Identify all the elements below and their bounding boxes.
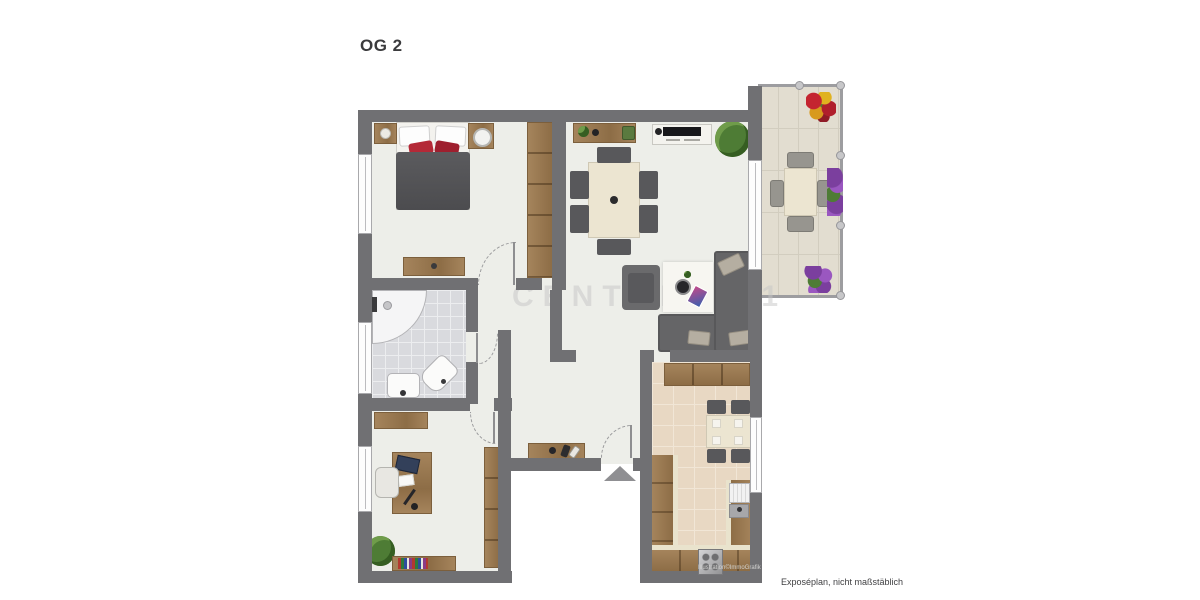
desk-lamp-base [411,503,418,510]
window-office [358,446,372,512]
coffee-table [675,279,691,295]
placemat [712,419,721,428]
potted-plant-small [622,126,635,140]
railing-post [836,291,845,300]
flower-box [806,92,836,122]
stove [698,549,723,575]
placemat [712,436,721,445]
dining-chair [639,171,658,199]
decor-bowl [592,129,599,136]
balcony-chair [787,152,814,168]
tv-stand-line [666,139,680,141]
wall-kitchen-left [640,362,652,583]
kitchen-chair [707,400,726,414]
flower-box [803,266,837,293]
dishwasher [729,483,750,503]
balcony-chair [770,180,784,207]
wall-office-bottom [358,571,512,583]
railing-post [836,151,845,160]
entrance-arrow [604,466,636,481]
balcony-chair [787,216,814,232]
dining-chair [570,171,589,199]
railing-post [795,81,804,90]
table-lamp [473,128,492,147]
shower-fixture [372,297,377,312]
table-decor [610,196,618,204]
basin-faucet [400,390,406,396]
office-chair [375,467,399,498]
wall-bath-right-upper [466,290,478,332]
wall-bedroom-bottom-a [372,278,478,290]
bed-duvet [396,152,470,210]
wall-right-mid [748,270,762,362]
wall-bedroom-bottom-b [516,278,542,290]
balcony-door [748,160,762,270]
armchair-seat [628,273,654,303]
dining-chair [570,205,589,233]
door-leaf-bathroom [476,333,478,363]
sink-faucet [737,507,742,512]
speaker [655,128,662,135]
wall-hall-living-vertical [550,290,562,354]
wardrobe [527,122,553,278]
dresser-knob [431,263,437,269]
wall-bedroom-living-divider [552,122,566,290]
wall-office-right [498,410,511,583]
door-leaf-bedroom [513,242,515,285]
wall-innerhall-left [498,330,511,410]
tv-stand-line [684,139,700,141]
bench-decor [549,447,556,454]
tv [663,127,701,136]
railing-post [836,221,845,230]
window-bathroom [358,322,372,394]
door-leaf-entrance [630,425,632,458]
wall-top [358,110,762,122]
window-kitchen [750,417,762,493]
dining-chair [597,147,631,163]
shower-drain [383,301,392,310]
wall-hall-living-stub [550,350,576,362]
office-sideboard [374,412,428,429]
wall-living-bottom-a [640,350,654,362]
railing-post [836,81,845,90]
kitchen-chair [731,400,750,414]
sideboard-plant [578,126,589,137]
potted-plant [715,121,750,157]
placemat [734,436,743,445]
dining-chair [597,239,631,255]
illustration-credit: Illustration©ImmoGrafik [698,565,761,571]
wall-kitchen-right-upper [750,362,762,417]
kitchen-chair [707,449,726,463]
floorplan-canvas: OG 2 CENTURY 21 [0,0,1200,600]
wall-hall-bottom-a [508,458,601,471]
wall-bath-office-a [358,398,470,411]
kitchen-top-cabinets [664,363,750,386]
placemat [734,419,743,428]
sofa-cushion [687,330,710,346]
vase-plant [684,271,691,278]
balcony-table [784,168,817,216]
wall-living-bottom-b [670,350,762,362]
floor-label: OG 2 [360,36,403,56]
books [398,558,428,569]
wall-right-upper [748,86,762,160]
paper [397,474,414,487]
dining-chair [639,205,658,233]
flower-box [827,168,843,216]
toilet-flush [441,379,446,384]
window-bedroom [358,154,372,234]
nightstand-decor [380,128,391,139]
door-leaf-office [493,412,495,443]
kitchen-chair [731,449,750,463]
